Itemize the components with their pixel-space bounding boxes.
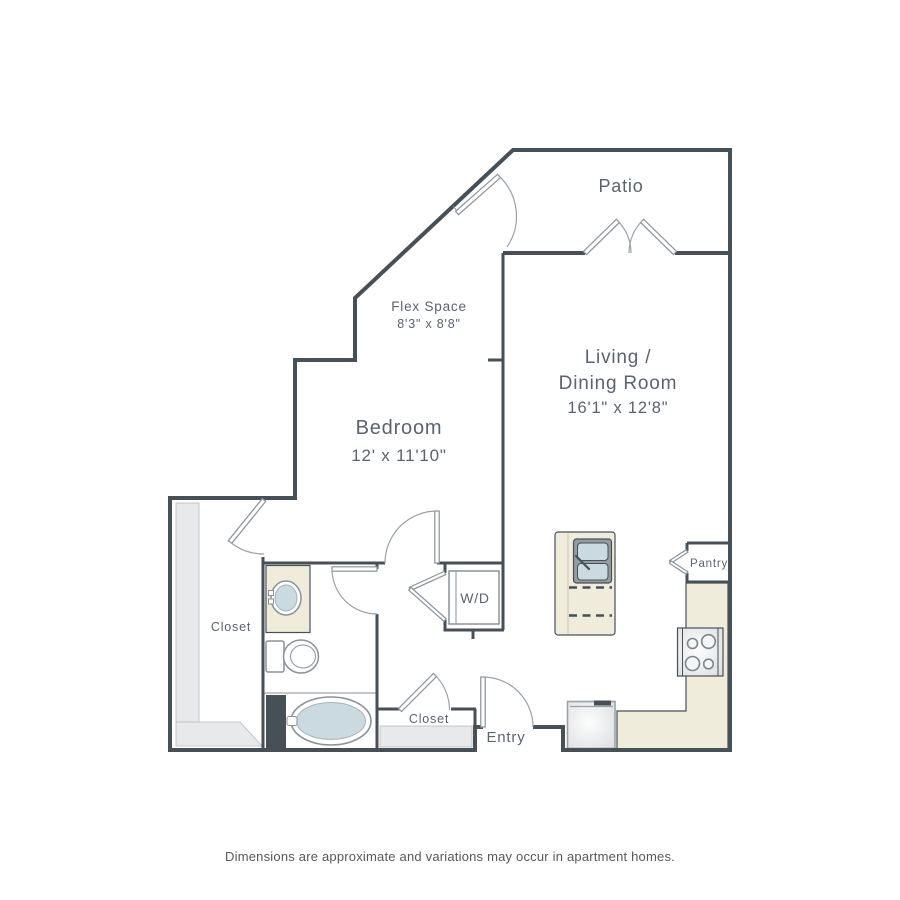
hall-closet-shelf [380,726,472,747]
living-room-label-line1: Living / [585,347,652,368]
floor-plan: Patio Flex Space 8'3" x 8'8" Living / Di… [0,0,900,900]
entry-label: Entry [486,729,525,746]
walk-in-closet-shelf [176,503,199,722]
stove [678,628,724,676]
bathtub-basin [297,703,366,740]
disclaimer-text: Dimensions are approximate and variation… [0,849,900,864]
hall-closet-label: Closet [409,712,449,726]
stove-burner [704,659,714,669]
bedroom-label: Bedroom [356,417,443,439]
flex-patio-door [454,174,517,247]
walk-in-closet-door [228,499,265,554]
tub-faucet [287,717,297,726]
floor-plan-canvas: Patio Flex Space 8'3" x 8'8" Living / Di… [0,0,900,900]
stove-burner [702,635,716,649]
kitchen-sink-basin [578,543,609,561]
patio-label: Patio [598,176,643,196]
laundry-label: W/D [460,590,490,606]
walk-in-closet-shelf-bottom [176,722,262,746]
living-room-label-line2: Dining Room [559,373,678,394]
flex-space-label: Flex Space [391,299,467,314]
toilet-tank [266,641,284,672]
bathroom-door [332,567,377,614]
sink-faucet-handle [269,591,274,596]
pantry-door [669,550,687,575]
exterior-walls [170,150,730,750]
entry-door [481,677,533,727]
bathroom-sink-basin [275,585,297,611]
pantry-label: Pantry [690,558,728,570]
laundry-bifold-door [409,571,447,621]
flex-space-dims: 8'3" x 8'8" [397,317,460,331]
bedroom-dims: 12' x 11'10" [351,446,447,465]
bedroom-door [385,511,439,563]
living-room-dims: 16'1" x 12'8" [568,399,669,417]
sink-faucet-handle [269,599,274,604]
refrigerator [568,702,616,749]
refrigerator-handle [594,701,611,706]
hall-closet-door [398,673,449,711]
walk-in-closet-label: Closet [211,620,251,634]
interior-walls [263,253,731,751]
kitchen-sink-basin [578,564,609,581]
patio-french-door-left [583,219,631,254]
plumbing-wall-block [266,695,286,748]
patio-french-door-right [629,219,677,254]
stove-burner [686,657,700,671]
stove-burner [688,639,698,649]
